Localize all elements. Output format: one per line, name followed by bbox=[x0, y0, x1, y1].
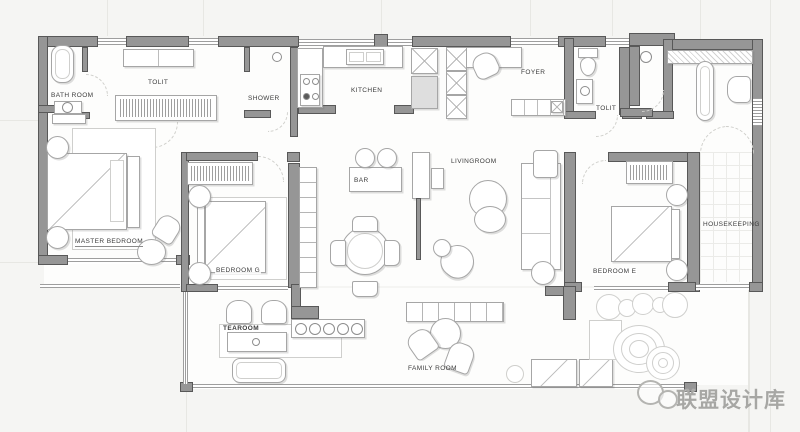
label-tolit-left: TOLIT bbox=[148, 79, 168, 86]
wall-corner-hk bbox=[749, 282, 763, 292]
bathtub-inner bbox=[55, 49, 70, 79]
wall-shower-bottom bbox=[244, 110, 271, 118]
tv bbox=[416, 198, 421, 260]
family-bench bbox=[406, 302, 504, 322]
sofa-seam bbox=[522, 233, 550, 234]
label-bedroom-e: BEDROOM E bbox=[592, 268, 637, 275]
floor-lamp bbox=[506, 365, 524, 383]
wall-bedroomg-bottom bbox=[186, 284, 218, 292]
dining-table-inner bbox=[347, 233, 383, 269]
grid-line bbox=[203, 0, 204, 36]
rock-rings bbox=[658, 358, 668, 368]
wall-top-3 bbox=[218, 36, 299, 47]
wall-top-7 bbox=[672, 39, 763, 50]
terrace-wall-left bbox=[183, 292, 188, 384]
laundry-chair bbox=[727, 76, 751, 103]
media-side-table bbox=[431, 168, 444, 189]
grid-line bbox=[530, 0, 531, 36]
label-bar: BAR bbox=[354, 177, 369, 184]
burner bbox=[303, 93, 310, 100]
watermark-text: 联盟设计库 bbox=[676, 384, 786, 414]
grid-line bbox=[107, 0, 108, 36]
master-pillow bbox=[110, 160, 124, 222]
label-foyer: FOYER bbox=[521, 69, 545, 76]
window-bedroomg-bottom bbox=[218, 286, 288, 291]
window-bedroome-bottom bbox=[594, 286, 668, 291]
wall-top-2 bbox=[126, 36, 189, 47]
cushion bbox=[309, 323, 321, 335]
label-tolit-right: TOLIT bbox=[596, 105, 616, 112]
window-housekeeping-bottom bbox=[696, 284, 749, 290]
garden-plant bbox=[662, 292, 688, 318]
bedroomg-bed bbox=[205, 201, 266, 273]
dining-chair bbox=[384, 240, 400, 266]
island-divider bbox=[158, 50, 159, 66]
bar-stool bbox=[355, 148, 375, 168]
label-family-room: FAMILY ROOM bbox=[408, 365, 457, 372]
vanity-basin bbox=[580, 86, 590, 96]
side-table bbox=[433, 239, 451, 257]
nightstand bbox=[46, 136, 69, 159]
tearoom-chair bbox=[226, 300, 252, 324]
sofa-back bbox=[550, 164, 551, 269]
burner bbox=[312, 93, 319, 100]
nightstand bbox=[666, 259, 688, 281]
tv-panel bbox=[412, 152, 430, 199]
cushion bbox=[295, 323, 307, 335]
grid-line bbox=[381, 0, 382, 34]
wall-top-4 bbox=[412, 36, 511, 47]
wall-master-bottom bbox=[38, 255, 68, 265]
label-kitchen: KITCHEN bbox=[351, 87, 382, 94]
wall-bath-divider bbox=[82, 47, 88, 72]
bedroome-bed bbox=[611, 206, 672, 262]
grid-line bbox=[186, 390, 187, 432]
fridge bbox=[411, 76, 438, 109]
window-top-5 bbox=[606, 38, 629, 45]
pantry-cabinet bbox=[446, 71, 467, 95]
coffee-table bbox=[474, 206, 506, 233]
wardrobe-hangers bbox=[630, 165, 669, 180]
kitchen-sink bbox=[346, 49, 384, 65]
master-dresser bbox=[52, 114, 86, 124]
wall-bedroome-right bbox=[687, 152, 700, 292]
window-top-1 bbox=[98, 38, 126, 45]
dining-chair bbox=[330, 240, 346, 266]
grid-line bbox=[0, 262, 38, 263]
stove bbox=[300, 74, 320, 106]
pantry-cabinet bbox=[446, 95, 467, 119]
window-below-master bbox=[40, 284, 180, 288]
label-shower: SHOWER bbox=[248, 95, 280, 102]
window-kitchen bbox=[299, 39, 374, 46]
window-top-4 bbox=[511, 38, 558, 45]
window-top-2 bbox=[189, 38, 218, 45]
tea-set bbox=[252, 338, 260, 346]
nightstand bbox=[188, 185, 211, 208]
sofa bbox=[521, 163, 561, 270]
label-bathroom: BATH ROOM bbox=[51, 92, 93, 99]
grid-line bbox=[770, 0, 771, 432]
burner bbox=[303, 78, 310, 85]
chaise-lounge bbox=[531, 359, 577, 387]
tearoom-chair bbox=[261, 300, 287, 324]
wall-shower-left bbox=[244, 47, 250, 72]
pouf bbox=[531, 261, 555, 285]
sink-bowl bbox=[349, 52, 364, 62]
sink-bowl bbox=[366, 52, 381, 62]
bookshelf bbox=[299, 167, 317, 288]
wardrobe-hangers bbox=[191, 166, 249, 181]
grid-line bbox=[0, 120, 38, 121]
sofa-seam bbox=[522, 198, 550, 199]
wall-family-L-horz bbox=[545, 286, 565, 296]
label-bedroom-g: BEDROOM G bbox=[215, 267, 261, 274]
cushion bbox=[323, 323, 335, 335]
label-housekeeping: HOUSEKEEPING bbox=[703, 221, 760, 228]
wall-living-right bbox=[564, 152, 576, 288]
housekeeping-floor bbox=[700, 152, 752, 282]
sofa-cushion bbox=[533, 150, 558, 178]
wall-family-L-vert bbox=[563, 286, 576, 320]
wechat-icon bbox=[658, 390, 678, 409]
nightstand bbox=[188, 262, 211, 285]
label-livingroom: LIVINGROOM bbox=[451, 158, 497, 165]
bedroomg-headboard bbox=[197, 204, 205, 270]
window-top-3 bbox=[388, 39, 412, 46]
grid-line bbox=[612, 0, 613, 36]
sink-basin bbox=[62, 102, 73, 113]
pantry-cabinet bbox=[446, 47, 467, 71]
floor-cushions bbox=[291, 319, 365, 338]
cushion bbox=[337, 323, 349, 335]
label-tearoom: TEAROOM bbox=[222, 325, 260, 332]
dining-chair bbox=[352, 216, 378, 232]
wall-bedroomg-top bbox=[186, 152, 258, 161]
ironing-board-inner bbox=[700, 66, 710, 116]
wall-bedroome-bottom bbox=[668, 282, 696, 292]
wall-laundry-left bbox=[629, 46, 640, 106]
bar-stool bbox=[377, 148, 397, 168]
floor-drain bbox=[640, 51, 652, 63]
rock-spiral bbox=[629, 340, 649, 358]
floor-plan: BATH ROOM TOLIT SHOWER KITCHEN FOYER TOL… bbox=[0, 0, 800, 432]
cushion bbox=[351, 323, 363, 335]
wall-right bbox=[752, 39, 763, 284]
nightstand bbox=[666, 184, 688, 206]
bedroome-headboard bbox=[671, 209, 680, 259]
wardrobe-hangers bbox=[120, 99, 212, 117]
tearoom-bench-inner bbox=[236, 362, 282, 379]
floor-drain bbox=[272, 52, 282, 62]
wall-bedroomg-tr bbox=[287, 152, 300, 162]
wall-tearoom-L-horz bbox=[291, 306, 319, 319]
garden-plant bbox=[632, 293, 654, 315]
chaise-lounge bbox=[579, 359, 613, 387]
nightstand bbox=[46, 226, 69, 249]
window-right bbox=[753, 98, 762, 126]
label-master-bedroom: MASTER BEDROOM bbox=[75, 238, 143, 247]
grid-line bbox=[700, 0, 701, 39]
master-headboard bbox=[127, 156, 140, 228]
console-tray bbox=[551, 101, 563, 113]
burner bbox=[312, 78, 319, 85]
wall-tolit-bottom-a bbox=[564, 111, 596, 119]
fridge-cabinet bbox=[411, 48, 438, 74]
dining-chair bbox=[352, 281, 378, 297]
